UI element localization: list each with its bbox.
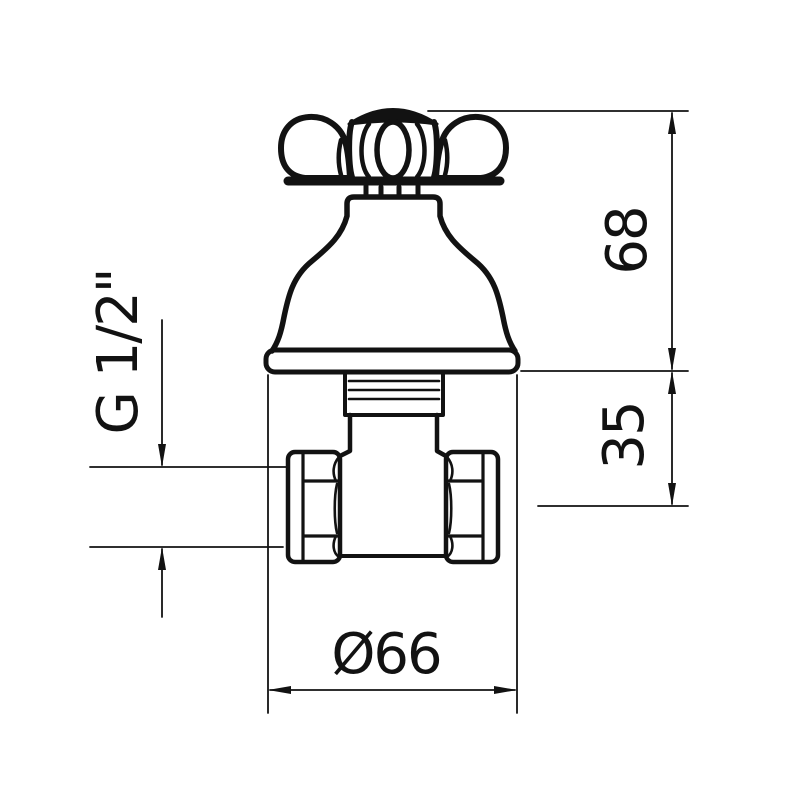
arrowhead-up (158, 547, 166, 570)
arrowhead-down (668, 348, 676, 371)
arrowhead-down (668, 483, 676, 506)
valve-body (340, 415, 446, 556)
arrowhead-up (668, 111, 676, 134)
dim-label-thread-size: G 1/2" (91, 269, 147, 434)
arrowhead-right (494, 686, 517, 694)
valve-handle (281, 110, 506, 198)
thread-section (345, 373, 443, 415)
thread-outline (345, 373, 443, 415)
handle-front-lobe (377, 122, 409, 178)
valve-bonnet (266, 197, 518, 372)
dim-label-total-height: 68 (600, 207, 656, 274)
right-nut-outline (446, 452, 498, 562)
dim-label-flange-diameter: Ø66 (331, 627, 440, 683)
body-sides (340, 415, 446, 456)
arrowhead-up (668, 371, 676, 394)
bonnet-outline (272, 197, 515, 351)
left-nut-outline (288, 452, 340, 562)
arrowhead-left (268, 686, 291, 694)
thread-lines (349, 381, 439, 399)
arrowhead-down (158, 444, 166, 467)
right-union-nut (446, 452, 498, 562)
drawing-canvas: 68 35 G 1/2" Ø66 (0, 0, 800, 800)
left-union-nut (288, 452, 340, 562)
bonnet-rim (266, 350, 518, 372)
dim-label-body-depth: 35 (597, 402, 653, 469)
handle-fillet-arcs (339, 124, 448, 177)
